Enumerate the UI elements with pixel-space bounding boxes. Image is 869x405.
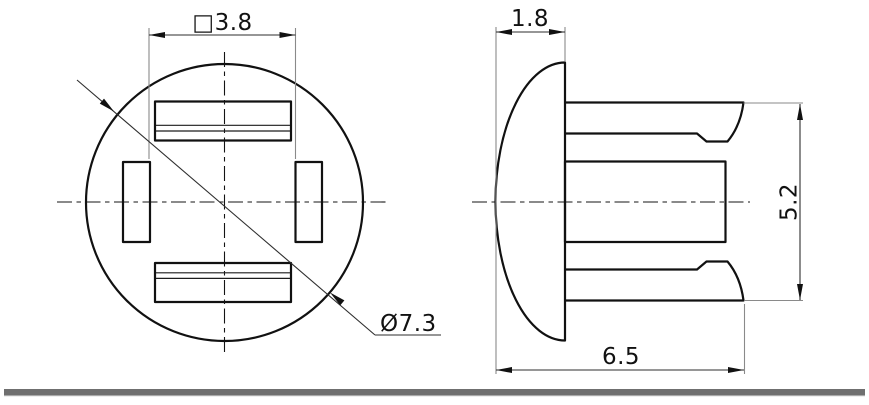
overall-length-arrow-left xyxy=(496,367,512,373)
bottom-prong-front xyxy=(155,263,291,302)
top-barb-side xyxy=(565,103,744,142)
head-diameter-label: Ø7.3 xyxy=(380,311,437,337)
dim-overall-length: 6.5 xyxy=(496,304,745,374)
diameter-arrow-upper xyxy=(100,99,114,112)
dim-square-width: □3.8 xyxy=(149,10,296,159)
baseline-bar xyxy=(4,389,865,396)
head-height-arrow-left xyxy=(496,29,512,35)
head-height-label: 1.8 xyxy=(511,6,549,32)
dim-head-height: 1.8 xyxy=(496,6,565,374)
dim-head-diameter: Ø7.3 xyxy=(77,80,441,337)
drawing-canvas: □3.8 Ø7.3 1.8 xyxy=(0,0,869,405)
overall-length-arrow-right xyxy=(728,367,744,373)
barb-span-arrow-bottom xyxy=(797,284,803,300)
square-width-arrow-left xyxy=(149,32,165,38)
side-view: 1.8 5.2 6.5 xyxy=(472,6,803,374)
barb-span-label: 5.2 xyxy=(777,183,803,221)
head-height-arrow-right xyxy=(549,29,565,35)
baseline-bar-highlight xyxy=(4,395,865,396)
barb-span-arrow-top xyxy=(797,104,803,120)
top-prong-front xyxy=(155,102,291,141)
dim-barb-span: 5.2 xyxy=(744,103,804,301)
front-view: □3.8 Ø7.3 xyxy=(57,10,441,352)
bottom-barb-side xyxy=(565,262,744,301)
square-width-arrow-right xyxy=(280,32,296,38)
overall-length-label: 6.5 xyxy=(602,344,640,370)
square-width-label: □3.8 xyxy=(192,10,252,36)
technical-drawing: □3.8 Ø7.3 1.8 xyxy=(0,0,869,405)
